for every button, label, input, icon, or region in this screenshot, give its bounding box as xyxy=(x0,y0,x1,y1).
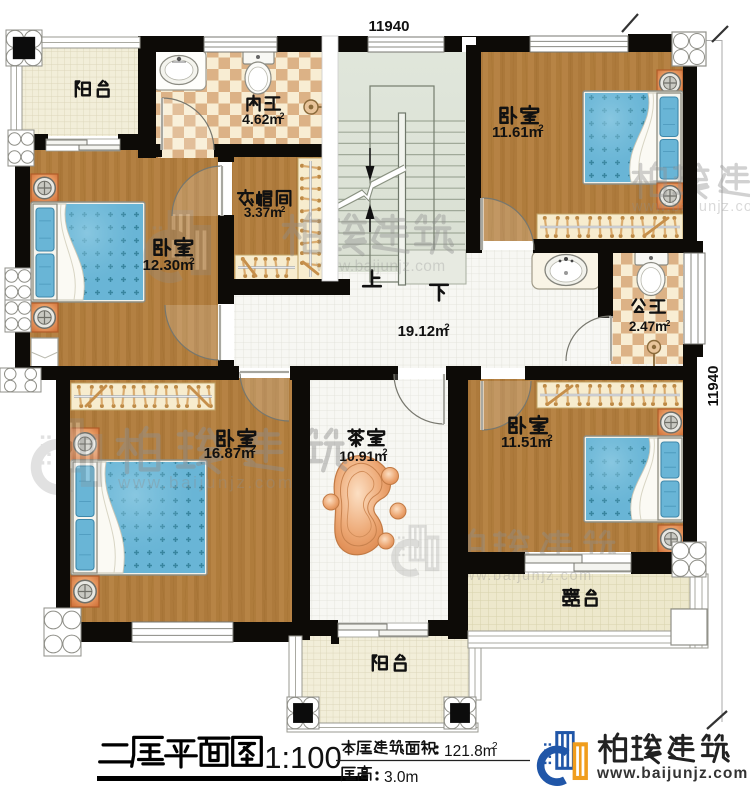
svg-text:2: 2 xyxy=(444,322,449,333)
svg-text:3.37m: 3.37m xyxy=(244,205,282,220)
svg-text:2: 2 xyxy=(666,318,671,328)
svg-text:2: 2 xyxy=(382,447,387,457)
svg-text:2: 2 xyxy=(538,123,543,134)
svg-text:12.30m: 12.30m xyxy=(143,257,194,274)
svg-text:2.47m: 2.47m xyxy=(629,319,667,334)
svg-text:2: 2 xyxy=(492,741,498,752)
svg-text:3.0m: 3.0m xyxy=(384,769,418,786)
svg-text:19.12m: 19.12m xyxy=(398,323,449,340)
svg-text:2: 2 xyxy=(281,204,286,214)
svg-text:1:100: 1:100 xyxy=(264,740,342,775)
svg-text:2: 2 xyxy=(279,111,284,121)
svg-text:www.baijunjz.com: www.baijunjz.com xyxy=(117,473,295,492)
svg-text:2: 2 xyxy=(189,256,194,267)
svg-text:121.8m: 121.8m xyxy=(444,743,496,760)
svg-text:11.61m: 11.61m xyxy=(492,124,542,141)
svg-text:2: 2 xyxy=(547,433,552,444)
svg-text:4.62m: 4.62m xyxy=(242,111,282,127)
svg-text:11940: 11940 xyxy=(369,18,410,35)
svg-text:11940: 11940 xyxy=(705,366,722,407)
svg-text:2: 2 xyxy=(250,444,255,455)
svg-text:10.91m: 10.91m xyxy=(339,448,386,464)
svg-text:www.baijunjz.com: www.baijunjz.com xyxy=(596,765,748,782)
svg-text:11.51m: 11.51m xyxy=(501,434,551,451)
svg-text:16.87m: 16.87m xyxy=(204,445,255,462)
